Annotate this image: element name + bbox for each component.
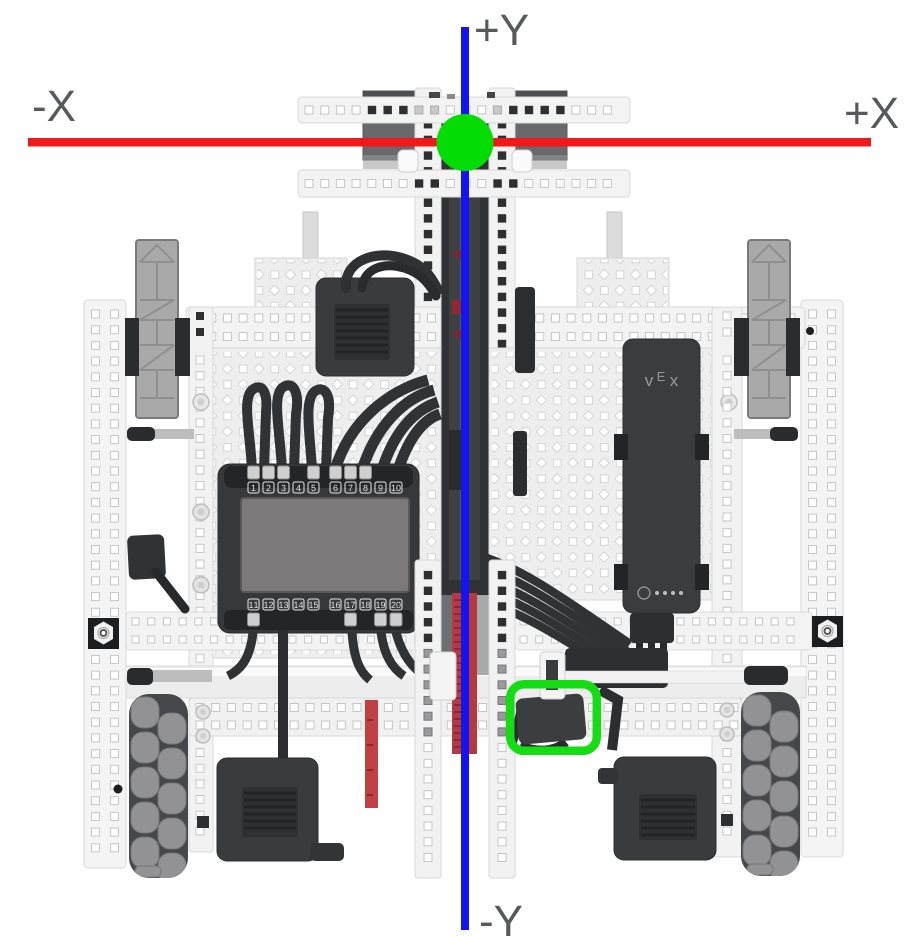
- svg-text:-X: -X: [32, 82, 76, 131]
- svg-text:-Y: -Y: [479, 897, 523, 946]
- svg-text:+Y: +Y: [474, 6, 529, 55]
- svg-text:+X: +X: [844, 89, 899, 138]
